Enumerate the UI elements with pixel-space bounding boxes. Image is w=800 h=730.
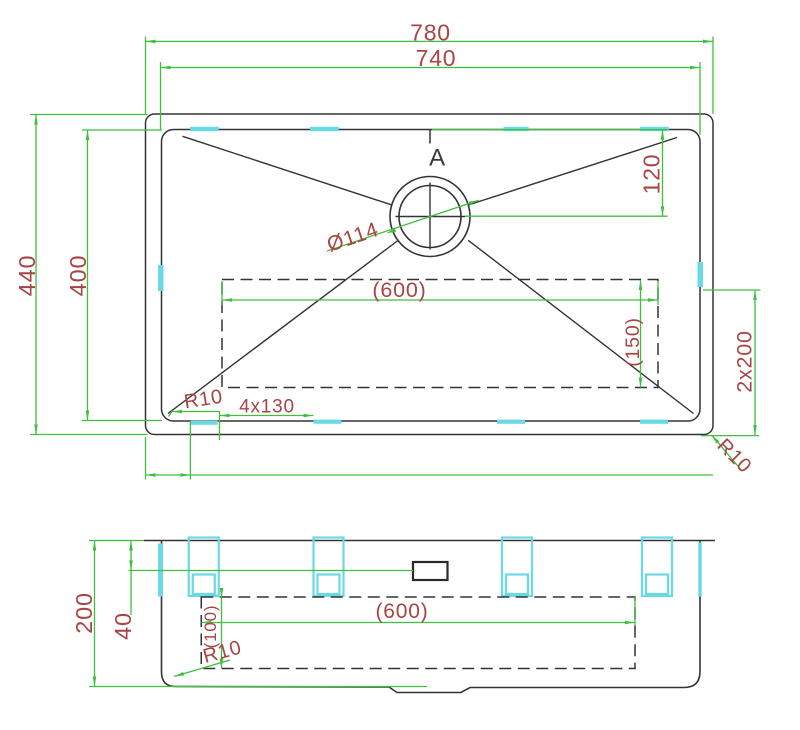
svg-text:780: 780: [410, 20, 451, 46]
svg-text:(600): (600): [372, 278, 426, 302]
svg-text:400: 400: [65, 255, 91, 297]
svg-text:120: 120: [639, 154, 665, 195]
svg-text:4x130: 4x130: [239, 397, 295, 418]
svg-text:440: 440: [14, 255, 40, 297]
svg-text:200: 200: [71, 592, 97, 634]
svg-text:(600): (600): [375, 600, 428, 623]
svg-text:(150): (150): [622, 317, 644, 367]
svg-text:A: A: [429, 145, 446, 172]
svg-text:40: 40: [110, 612, 136, 640]
svg-text:740: 740: [416, 45, 457, 71]
svg-text:2x200: 2x200: [733, 330, 757, 393]
